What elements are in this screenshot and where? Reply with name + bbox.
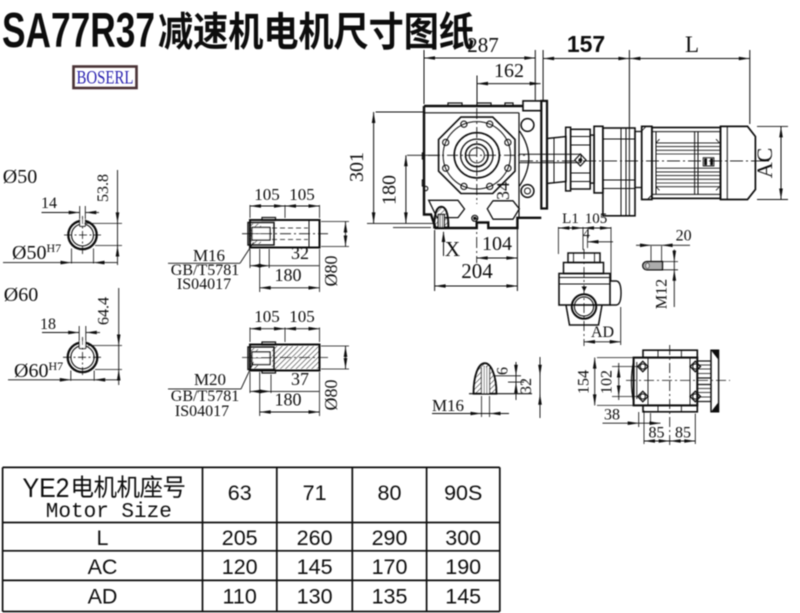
svg-text:M16: M16	[432, 396, 464, 415]
svg-text:YE2: YE2	[23, 473, 70, 503]
svg-text:120: 120	[222, 555, 258, 579]
svg-text:L: L	[97, 526, 109, 550]
svg-text:301: 301	[346, 152, 368, 182]
svg-text:32: 32	[291, 243, 309, 263]
svg-text:Ø60: Ø60	[4, 284, 38, 306]
svg-text:18: 18	[40, 316, 56, 333]
svg-text:20: 20	[676, 228, 692, 245]
svg-text:AC: AC	[752, 148, 777, 179]
svg-text:130: 130	[297, 585, 333, 609]
svg-text:L1: L1	[562, 211, 579, 227]
svg-text:53.8: 53.8	[95, 174, 112, 202]
svg-text:205: 205	[222, 526, 258, 550]
svg-text:37: 37	[291, 369, 309, 389]
svg-text:135: 135	[372, 585, 408, 609]
svg-text:105: 105	[289, 185, 315, 204]
svg-text:180: 180	[275, 265, 302, 285]
svg-text:180: 180	[379, 175, 401, 205]
svg-text:AD: AD	[88, 585, 118, 609]
svg-text:M20: M20	[194, 370, 226, 389]
svg-text:71: 71	[303, 481, 327, 505]
svg-text:204: 204	[461, 259, 493, 283]
svg-text:14: 14	[41, 195, 57, 212]
svg-text:85: 85	[675, 425, 691, 442]
svg-text:90S: 90S	[444, 481, 482, 505]
svg-text:Ø50: Ø50	[3, 166, 37, 188]
svg-text:105: 105	[254, 185, 280, 204]
svg-text:300: 300	[445, 526, 481, 550]
svg-text:38: 38	[604, 407, 620, 424]
svg-text:X: X	[445, 237, 460, 261]
svg-text:Motor Size: Motor Size	[46, 501, 172, 524]
svg-text:102: 102	[599, 370, 616, 394]
svg-text:290: 290	[372, 526, 408, 550]
svg-text:80: 80	[378, 481, 402, 505]
svg-text:104: 104	[482, 233, 512, 255]
svg-text:M12: M12	[654, 279, 671, 309]
svg-text:IS04017: IS04017	[175, 403, 229, 420]
svg-text:SA77R37: SA77R37	[2, 4, 155, 58]
svg-text:154: 154	[576, 370, 593, 394]
svg-text:AC: AC	[88, 555, 118, 579]
svg-text:IS04017: IS04017	[177, 276, 231, 293]
svg-text:190: 190	[445, 555, 481, 579]
svg-text:4: 4	[583, 227, 590, 242]
svg-text:145: 145	[297, 555, 333, 579]
svg-text:105: 105	[254, 307, 280, 326]
svg-text:BOSERL: BOSERL	[77, 69, 134, 89]
svg-text:6: 6	[495, 367, 512, 375]
svg-text:105: 105	[585, 211, 608, 227]
svg-text:AD: AD	[591, 324, 614, 341]
svg-text:162: 162	[494, 60, 524, 82]
svg-text:260: 260	[297, 526, 333, 550]
svg-text:32: 32	[518, 378, 535, 394]
svg-text:34: 34	[493, 182, 513, 200]
svg-text:105: 105	[289, 307, 315, 326]
svg-text:63: 63	[228, 481, 252, 505]
svg-text:180: 180	[275, 390, 302, 410]
svg-text:64.4: 64.4	[96, 297, 113, 325]
svg-text:L: L	[685, 32, 699, 57]
svg-text:170: 170	[372, 555, 408, 579]
svg-text:85: 85	[649, 425, 665, 442]
svg-text:287: 287	[467, 33, 499, 57]
svg-text:110: 110	[223, 585, 257, 609]
svg-text:145: 145	[445, 585, 481, 609]
svg-text:Ø80: Ø80	[321, 256, 341, 287]
svg-text:157: 157	[567, 31, 605, 57]
svg-text:Ø80: Ø80	[321, 380, 341, 411]
